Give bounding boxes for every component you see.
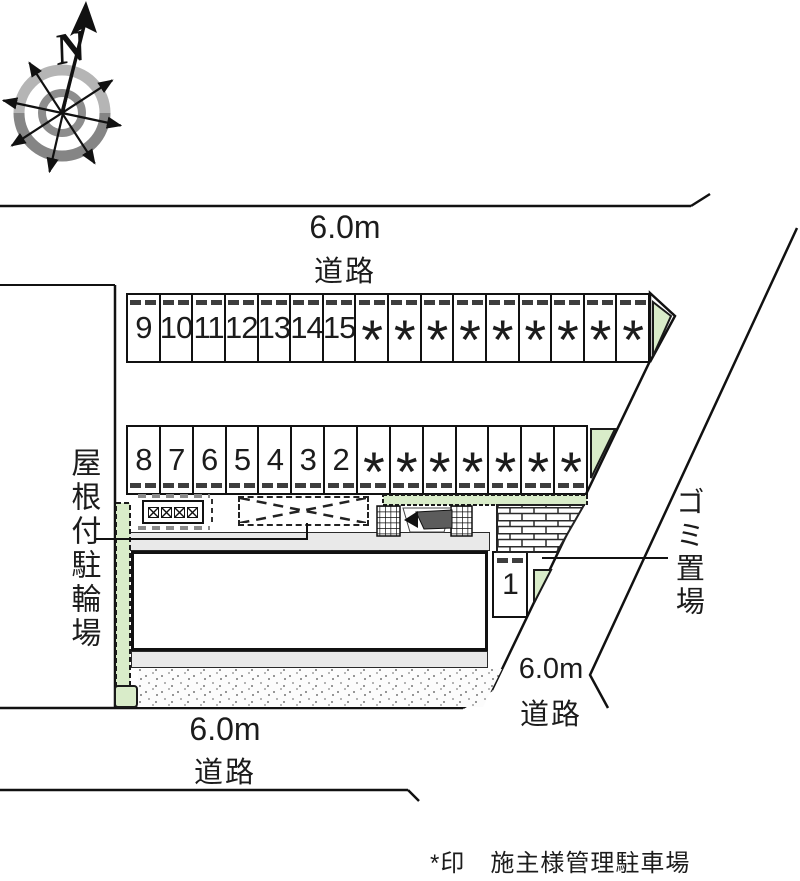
parking-stall: 13 [257, 295, 290, 361]
parking-stall: 15 [322, 295, 355, 361]
building [131, 551, 488, 651]
parking-stall: * [518, 295, 551, 361]
compass-icon: N [3, 1, 120, 172]
stall-label: * [422, 306, 453, 372]
stall-label: * [522, 438, 553, 504]
parking-stall: 10 [159, 295, 192, 361]
parking-stall: 2 [323, 427, 356, 493]
stall-label: 7 [161, 427, 192, 493]
road-top-width-label: 6.0m [280, 209, 410, 246]
parking-stall: 14 [289, 295, 322, 361]
bicycle-slot-icon [161, 507, 172, 518]
parking-stall: * [487, 427, 520, 493]
bicycle-slot-icon [187, 507, 198, 518]
roof-cross-lines [240, 498, 366, 523]
planting-triangle-row-top [653, 302, 671, 356]
road-bottom-label: 道路 [160, 749, 290, 791]
stall-label: 15 [324, 295, 355, 361]
stall-label: 14 [291, 295, 322, 361]
stall-label: 6 [194, 427, 225, 493]
road-right-width-label: 6.0m [508, 653, 594, 686]
stall-label: 10 [161, 295, 192, 361]
planting-bottom-left [115, 686, 137, 707]
bicycle-rack [142, 500, 204, 524]
parking-stall: 12 [224, 295, 257, 361]
parking-stall: * [583, 295, 616, 361]
garbage-area-paving [497, 505, 584, 552]
wheel-stop-dashes [620, 300, 646, 305]
parking-stall-1: 1 [492, 551, 528, 618]
covered-bicycle-parking-label: 屋根付駐輪場 [66, 447, 98, 657]
stall-label: 5 [227, 427, 258, 493]
parking-stall: * [422, 427, 455, 493]
row-top-end-cap [650, 293, 675, 362]
wheel-stop-dashes [424, 300, 450, 305]
parking-stall: * [455, 427, 488, 493]
parking-stall: 3 [290, 427, 323, 493]
stall-label: * [617, 306, 648, 372]
parking-stall: * [356, 427, 389, 493]
bicycle-roof-outline [238, 496, 369, 526]
stall-label: * [489, 438, 520, 504]
stall-label: * [555, 438, 586, 504]
wheel-stop-dashes [489, 300, 515, 305]
stall-label: 2 [325, 427, 356, 493]
parking-stall: * [520, 427, 553, 493]
parking-stall: * [354, 295, 387, 361]
parking-stall: * [420, 295, 453, 361]
planting-triangle-row-bottom [591, 429, 615, 478]
stall-label: 1 [494, 553, 526, 616]
stall-label: * [454, 306, 485, 372]
wheel-stop-dashes [359, 300, 385, 305]
legend-note: *印 施主様管理駐車場 [430, 843, 690, 878]
road-top-label: 道路 [280, 248, 410, 290]
parking-stall: * [452, 295, 485, 361]
parking-stall: 5 [225, 427, 258, 493]
north-arrow-shaft [62, 26, 84, 113]
road-bottom-width-label: 6.0m [160, 711, 290, 748]
stall-label: 11 [193, 295, 224, 361]
stall-label: 9 [128, 295, 159, 361]
parking-row-top: 9101112131415********* [126, 293, 650, 363]
stall-label: * [356, 306, 387, 372]
parking-stall: 7 [159, 427, 192, 493]
stall-label: * [391, 438, 422, 504]
north-arrow-head [70, 1, 97, 36]
walkway-back [131, 651, 488, 668]
wheel-stop-dashes [554, 300, 580, 305]
stall-label: 12 [226, 295, 257, 361]
stall-label: * [585, 306, 616, 372]
parking-stall: * [387, 295, 420, 361]
stall-label: * [358, 438, 389, 504]
parking-stall: * [550, 295, 583, 361]
stall-label: 8 [128, 427, 159, 493]
stall-label: * [389, 306, 420, 372]
wheel-stop-dashes [391, 300, 417, 305]
stall-label: * [424, 438, 455, 504]
wheel-stop-dashes [522, 300, 548, 305]
parking-row-bottom: 8765432******* [126, 425, 588, 495]
parking-stall: 9 [128, 295, 159, 361]
wheel-stop-dashes [587, 300, 613, 305]
gravel-area [138, 669, 502, 707]
stall-label: 13 [259, 295, 290, 361]
stall-label: 3 [292, 427, 323, 493]
stall-label: 4 [259, 427, 290, 493]
compass-north-letter: N [49, 20, 93, 75]
planting-right-of-stall1 [534, 570, 551, 603]
stall-label: * [487, 306, 518, 372]
parking-stall: * [615, 295, 648, 361]
bicycle-slot-icon [174, 507, 185, 518]
parking-stall: 6 [192, 427, 225, 493]
entrance-steps [403, 508, 452, 532]
parking-stall: 4 [257, 427, 290, 493]
site-plan: N [0, 0, 800, 881]
parking-stall: * [389, 427, 422, 493]
bicycle-slot-icon [148, 507, 159, 518]
parking-stall: * [553, 427, 586, 493]
stall-label: * [552, 306, 583, 372]
garbage-area-label: ゴミ置場 [671, 487, 702, 637]
parking-stall: 11 [191, 295, 224, 361]
wheel-stop-dashes [457, 300, 483, 305]
stall-label: * [520, 306, 551, 372]
stall-label: * [457, 438, 488, 504]
parking-stall: 8 [128, 427, 159, 493]
road-right-label: 道路 [512, 691, 590, 733]
walkway-front [128, 532, 490, 551]
parking-stall: * [485, 295, 518, 361]
